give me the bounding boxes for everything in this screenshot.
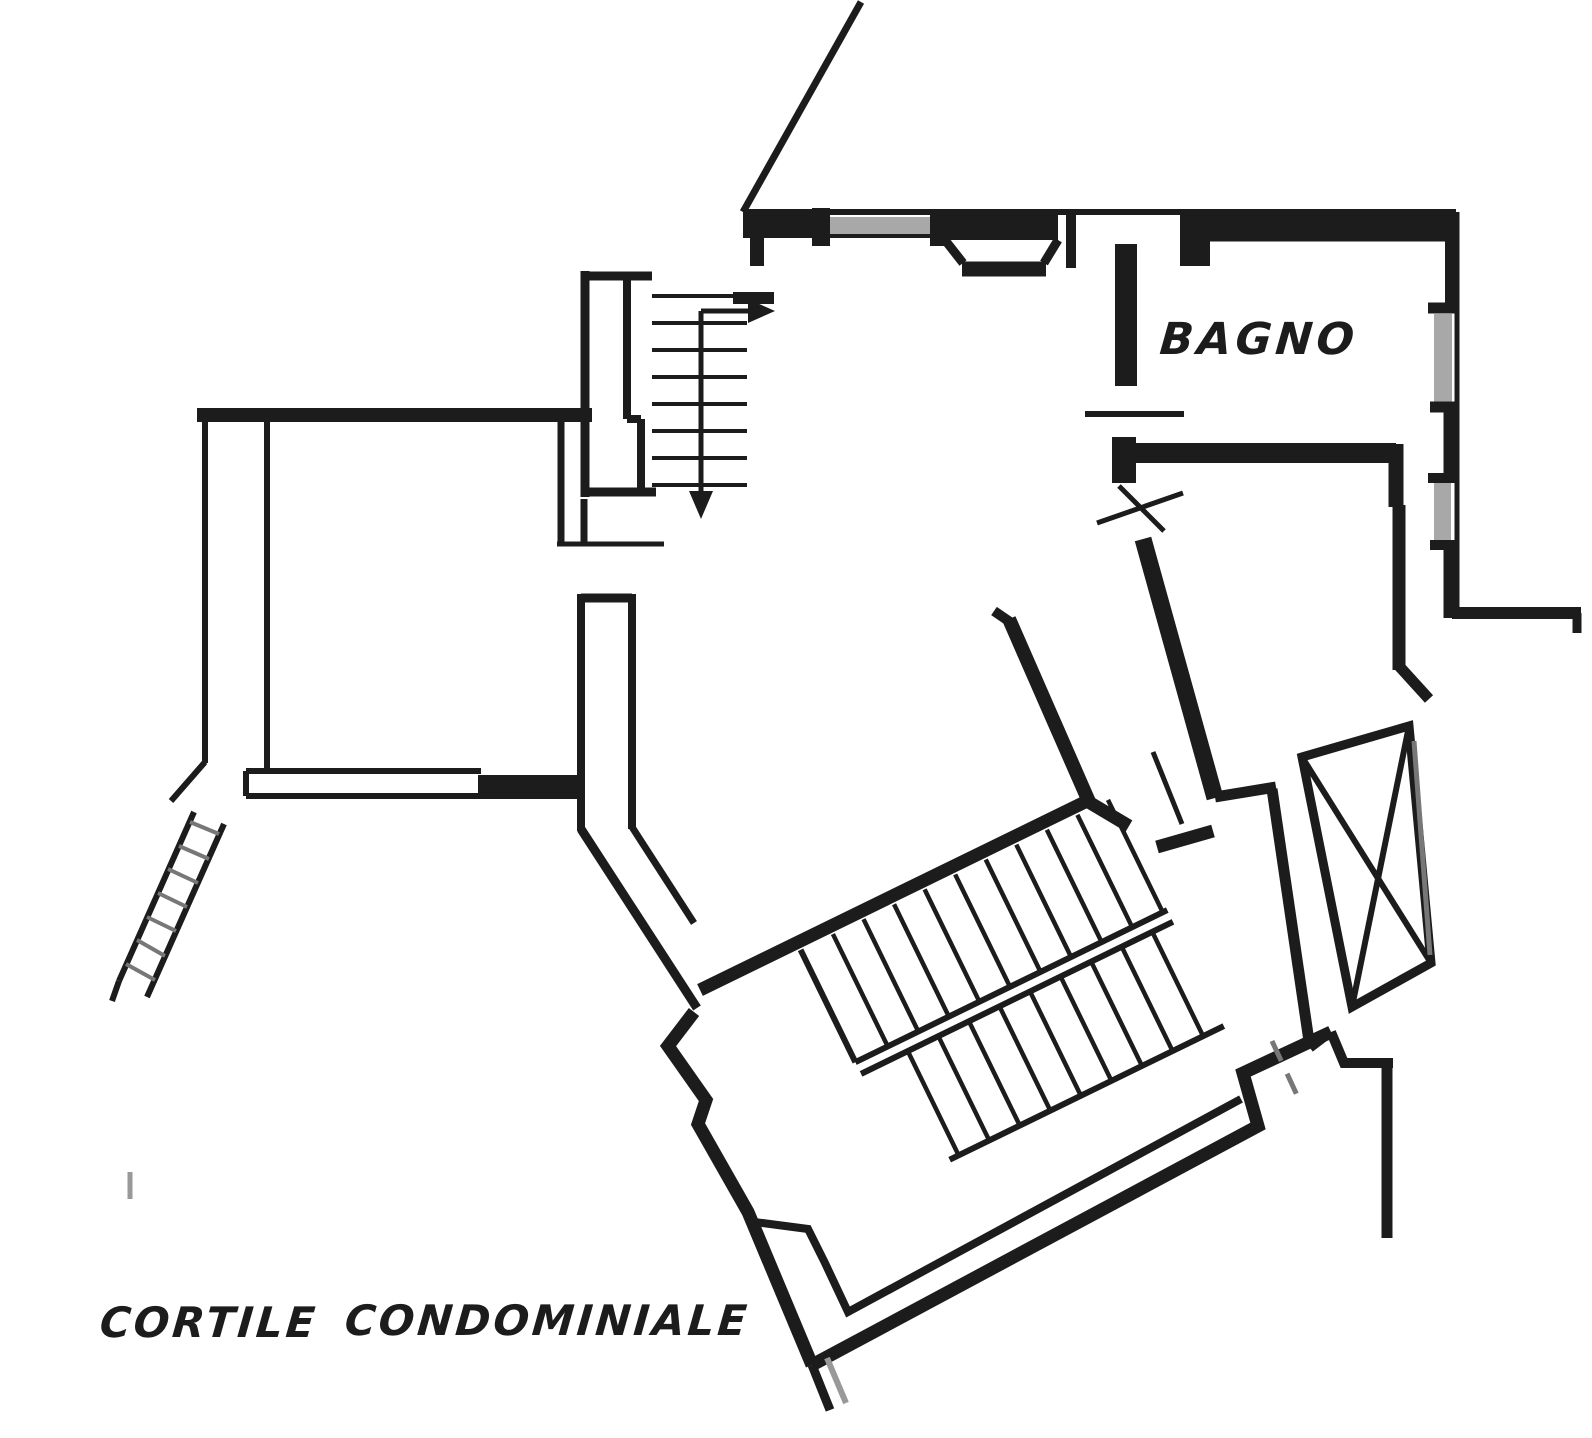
- east-stub-wall: [1452, 613, 1581, 633]
- area-label-courtyard-word2: CONDOMINIALE: [343, 1296, 752, 1345]
- stairwell-west-wall: [581, 594, 697, 1008]
- door-swing-line: [1119, 486, 1164, 531]
- main-staircase: [668, 798, 1331, 1410]
- entry-stair: [585, 212, 775, 519]
- corridor-walls: [1399, 505, 1429, 699]
- top-diagonal-wall: [743, 2, 861, 212]
- window-glass: [823, 217, 930, 234]
- arrow-head-icon: [689, 491, 713, 519]
- hatch-marks: [126, 822, 219, 980]
- stair-flights: [801, 798, 1224, 1178]
- floor-plan-drawing: [0, 0, 1592, 1438]
- courtyard-hatched-wall: [112, 812, 224, 1199]
- elevator-shaft: [1215, 726, 1431, 1238]
- window-glass: [1434, 314, 1452, 402]
- window-glass: [1434, 482, 1451, 541]
- hall-diagonal-wall: [1097, 486, 1215, 798]
- passage-wall: [994, 611, 1090, 804]
- north-wall: [743, 208, 1456, 269]
- east-wall: [1428, 212, 1459, 618]
- bathroom-walls: [1085, 244, 1396, 507]
- floor-plan-page: BAGNO CORTILE CONDOMINIALE: [0, 0, 1592, 1438]
- door-leaf-line: [1153, 752, 1182, 824]
- elevator-cross-line: [1352, 726, 1409, 1007]
- area-label-courtyard-word1: CORTILE: [98, 1298, 320, 1347]
- west-room: [171, 415, 592, 801]
- room-label-bathroom: BAGNO: [1158, 314, 1360, 365]
